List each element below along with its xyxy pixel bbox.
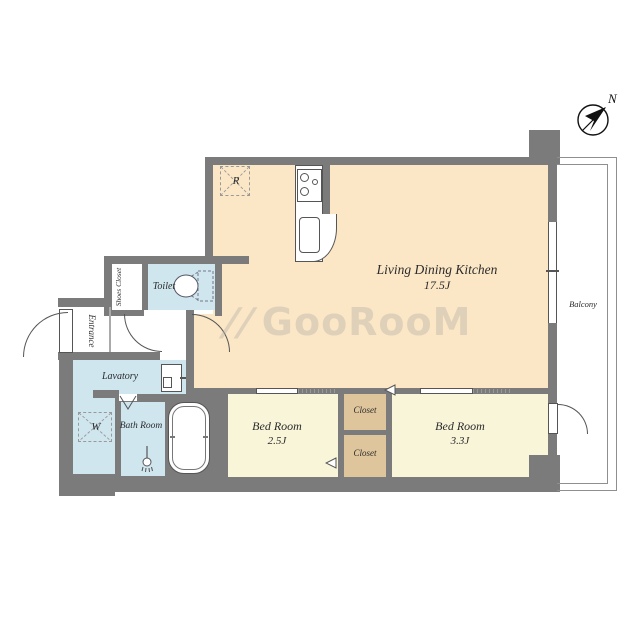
lavatory-label: Lavatory <box>84 371 156 383</box>
bathtub-tap-left <box>170 436 175 438</box>
wall-closet-right <box>386 388 392 477</box>
toilet-label: Toilet <box>142 281 186 293</box>
closet1-label: Closet <box>344 405 386 415</box>
entrance-label: Entrance <box>85 306 97 356</box>
watermark: //GooRooM <box>224 300 471 344</box>
washbasin-bowl <box>163 377 172 388</box>
shoes-closet-label: Shoes Closet <box>115 266 139 308</box>
refrigerator-mark: R <box>221 175 251 188</box>
balcony-rail-inner <box>557 164 608 484</box>
wall-block-bottomleft <box>59 474 115 496</box>
wall-top <box>205 157 560 165</box>
compass-north-label: N <box>607 91 618 106</box>
wall-right-mid <box>548 323 557 403</box>
bath-door-icon <box>118 392 138 412</box>
stove-burner-small <box>312 179 318 185</box>
entrance-step-line <box>109 307 111 352</box>
entrance-door-arc <box>23 312 68 357</box>
wall-bottom <box>59 477 548 492</box>
wall-ldk-left <box>205 157 213 264</box>
stove-burner-1 <box>300 173 309 182</box>
sliding-door-panel-2 <box>420 388 473 394</box>
bedroom2-label: Bed Room <box>400 420 520 434</box>
ldk-size: 17.5J <box>337 279 537 293</box>
sliding-door-arrow-top-icon <box>384 384 396 396</box>
shower-icon <box>138 444 156 474</box>
washing-machine-box: W <box>78 412 112 442</box>
wall-closet-mid <box>344 430 386 435</box>
wall-pillar-topright <box>529 130 560 165</box>
bedroom1-size: 2.5J <box>217 435 337 448</box>
stove-burner-2 <box>300 187 309 196</box>
washer-mark: W <box>79 421 113 434</box>
balcony-label: Balcony <box>555 300 611 310</box>
bathtub-inner-line <box>172 406 206 470</box>
watermark-text: GooRooM <box>262 300 472 344</box>
floor-plan: W R Living Di <box>0 0 640 640</box>
ldk-label: Living Dining Kitchen <box>337 262 537 278</box>
wall-kitchen-stub <box>322 165 330 214</box>
wall-right-upper <box>548 165 557 222</box>
bedroom1-label: Bed Room <box>217 420 337 434</box>
wall-lavatory-top <box>58 352 160 360</box>
sliding-door-arrow-bottom-icon <box>325 457 337 469</box>
kitchen-sink <box>299 217 320 253</box>
sliding-door-track-1 <box>298 389 336 393</box>
sliding-door-track-2 <box>473 389 513 393</box>
compass-icon: N <box>572 85 632 141</box>
refrigerator-box: R <box>220 166 250 196</box>
watermark-logo-icon: // <box>217 300 261 344</box>
sliding-door-panel-1 <box>256 388 298 394</box>
bathtub-tap-right <box>203 436 208 438</box>
closet2-label: Closet <box>344 448 386 458</box>
bathroom-label: Bath Room <box>119 421 163 432</box>
wall-left-exterior <box>59 357 73 478</box>
toilet-door-arc <box>124 314 162 352</box>
washbasin-tick <box>180 377 186 379</box>
bedroom2-size: 3.3J <box>400 435 520 448</box>
